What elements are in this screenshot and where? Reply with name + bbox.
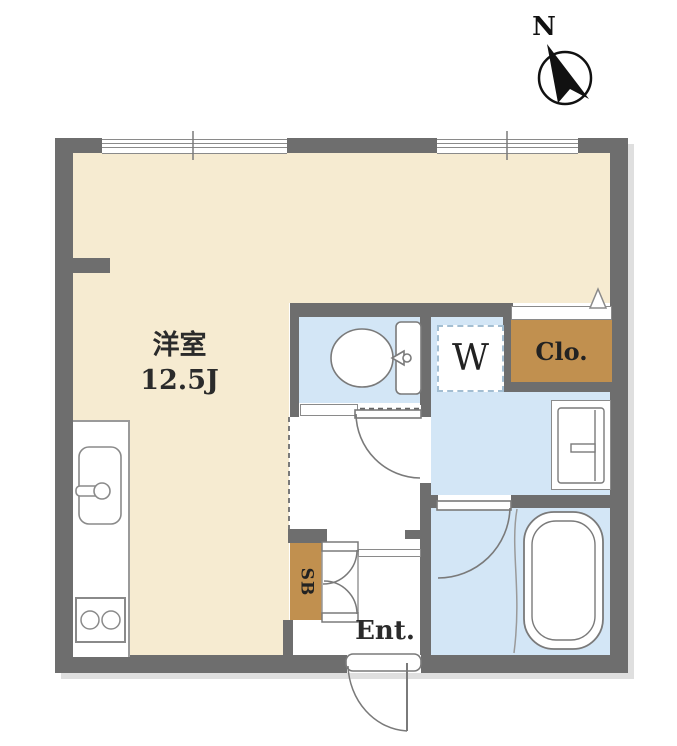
kitchen-counter <box>73 420 130 657</box>
washer-space-label: W <box>452 338 489 379</box>
toilet-door-rail <box>358 405 421 414</box>
wall-closet-bottom <box>503 382 612 392</box>
wall-bottom-left <box>55 655 347 673</box>
closet-box: Clo. <box>511 320 612 382</box>
wall-bathroom-west <box>431 495 438 508</box>
compass-needle <box>547 44 589 103</box>
wall-entrance-stub <box>405 530 421 539</box>
wall-left <box>55 138 73 673</box>
entrance-label: Ent. <box>348 616 422 646</box>
main-room-label: 洋室 12.5J <box>102 328 257 406</box>
shoe-box: SB <box>290 543 322 620</box>
wall-sanitary-top <box>290 303 513 317</box>
toilet-room-floor <box>299 317 420 403</box>
window-top-right <box>437 139 578 154</box>
compass <box>539 44 591 104</box>
window-top-left <box>102 139 287 154</box>
main-room-floor-top <box>73 153 612 303</box>
toilet-sliding-door <box>300 404 358 416</box>
main-room-name: 洋室 <box>102 328 257 363</box>
wall-shoebox-top <box>288 529 327 543</box>
compass-north-label: N <box>528 12 560 44</box>
wall-bottom-right <box>421 655 628 673</box>
wall-right <box>610 138 628 673</box>
wall-toilet-west <box>290 303 299 417</box>
wall-top-middle <box>287 138 437 153</box>
compass-circle <box>539 52 591 104</box>
entrance-step-line <box>358 549 421 557</box>
shoe-box-label: SB <box>296 567 316 596</box>
bathroom-floor <box>431 508 612 655</box>
floor-plan: W Clo. SB <box>0 0 677 746</box>
wall-top-right <box>578 138 628 153</box>
wall-stub-left <box>72 258 110 273</box>
wall-entrance-west <box>283 620 293 655</box>
closet-door-strip <box>511 306 612 320</box>
wall-bathroom-east <box>511 495 612 508</box>
closet-label: Clo. <box>535 337 587 366</box>
main-room-size: 12.5J <box>102 363 257 398</box>
entrance-opening <box>347 655 421 673</box>
washer-space-box: W <box>437 325 504 392</box>
wall-top-left <box>55 138 102 153</box>
vanity-unit <box>551 400 611 490</box>
wall-center-upper <box>420 303 431 417</box>
entrance-door-swing-arc <box>348 666 407 731</box>
